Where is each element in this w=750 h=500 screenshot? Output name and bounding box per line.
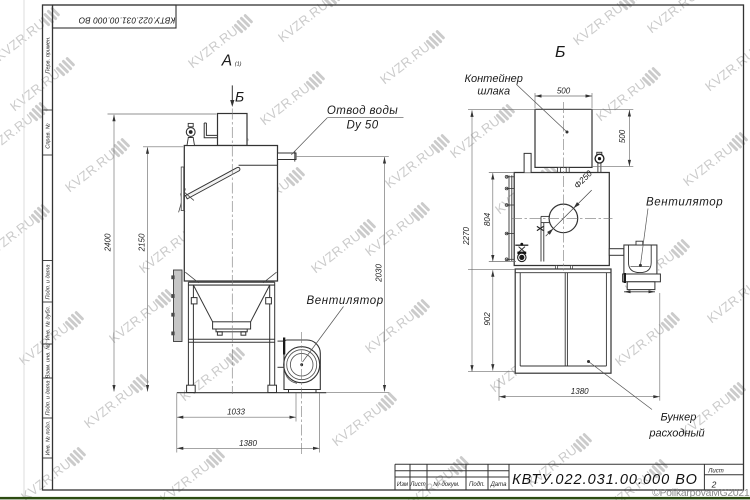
svg-text:Лист: Лист: [707, 469, 723, 475]
svg-text:расходный: расходный: [648, 428, 704, 440]
svg-text:Лист: Лист: [409, 482, 425, 488]
svg-text:1033: 1033: [227, 408, 245, 417]
svg-text:№ докум.: № докум.: [433, 481, 459, 488]
svg-text:Дата: Дата: [490, 482, 507, 488]
svg-text:Подп.: Подп.: [469, 482, 485, 488]
svg-text:Подп. и дата: Подп. и дата: [46, 264, 52, 299]
svg-text:Б: Б: [235, 89, 244, 105]
svg-text:2150: 2150: [137, 233, 146, 252]
svg-text:(1): (1): [235, 61, 242, 67]
svg-text:Изм: Изм: [397, 482, 408, 488]
svg-text:Б: Б: [555, 44, 565, 61]
svg-text:Взам. инв. №: Взам. инв. №: [46, 344, 52, 379]
svg-text:804: 804: [483, 212, 492, 226]
svg-text:Контейнер: Контейнер: [465, 73, 523, 85]
svg-text:500: 500: [557, 86, 571, 95]
svg-text:Перв. примен.: Перв. примен.: [46, 36, 52, 73]
svg-text:2030: 2030: [375, 264, 384, 283]
svg-text:Бункер: Бункер: [660, 412, 696, 424]
svg-text:шлака: шлака: [477, 86, 510, 98]
svg-text:1380: 1380: [239, 439, 257, 448]
svg-text:КВТУ.022.031.00.000 ВО: КВТУ.022.031.00.000 ВО: [512, 472, 698, 488]
svg-text:2400: 2400: [104, 233, 113, 252]
svg-text:1380: 1380: [571, 387, 589, 396]
svg-text:Подп. и дата: Подп. и дата: [46, 380, 52, 415]
svg-text:500: 500: [618, 129, 627, 143]
svg-text:КВТУ.022.031.00.000 ВО: КВТУ.022.031.00.000 ВО: [78, 16, 175, 25]
svg-text:Инв. № подл.: Инв. № подл.: [46, 421, 52, 456]
svg-text:Вентилятор: Вентилятор: [646, 197, 723, 209]
svg-text:2270: 2270: [462, 227, 471, 246]
svg-text:Вентилятор: Вентилятор: [307, 295, 384, 307]
svg-text:А: А: [221, 52, 232, 69]
svg-text:Dy 50: Dy 50: [346, 120, 378, 132]
svg-text:Инв. № дубл.: Инв. № дубл.: [46, 306, 52, 340]
svg-text:Отвод воды: Отвод воды: [327, 105, 398, 117]
svg-text:902: 902: [483, 312, 492, 326]
svg-text:Справ. №: Справ. №: [46, 123, 52, 148]
